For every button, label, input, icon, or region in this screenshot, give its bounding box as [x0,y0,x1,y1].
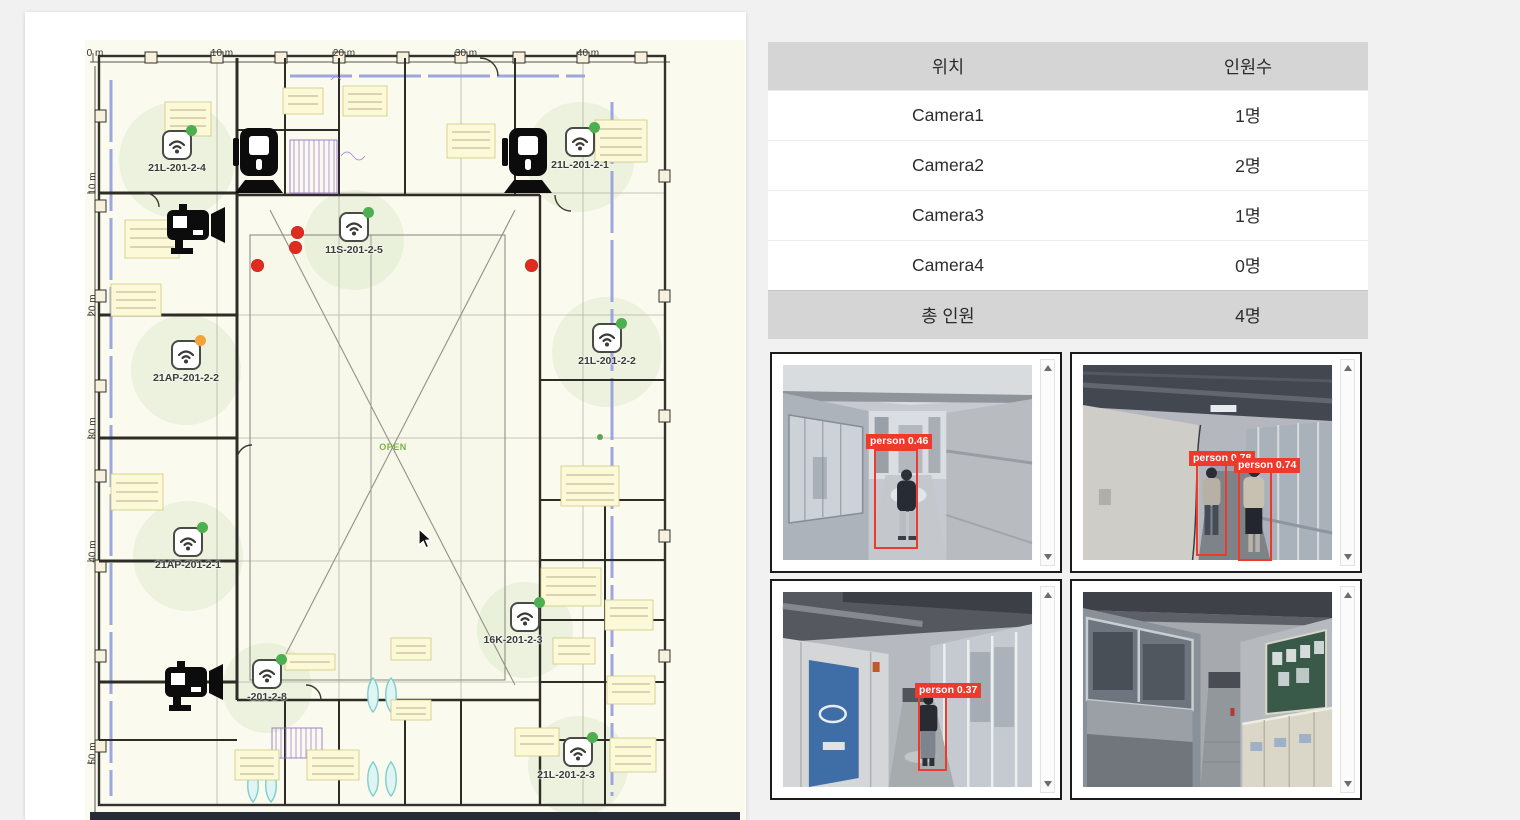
floor-plan-card: 0 m 10 m 20 m 30 m 40 m 10 m 20 m 30 m 4… [25,12,746,820]
person-dot [291,226,304,239]
scroll-up-arrow[interactable] [1341,361,1354,375]
camera4-map-icon[interactable] [165,661,227,716]
ap-status-dot [276,654,287,665]
camera1-frame: person 0.46 [777,359,1038,566]
cell-location: Camera3 [768,205,1128,226]
left-ruler-30m: 30 m [88,415,99,443]
detection-label: person 0.37 [915,683,981,698]
scroll-up-arrow[interactable] [1041,588,1054,602]
total-label: 총 인원 [768,303,1128,328]
camera4-frame [1077,586,1338,793]
table-row-camera2: Camera2 2명 [768,140,1368,190]
left-ruler-10m: 10 m [88,170,99,198]
detection-box [874,449,918,549]
scroll-up-arrow[interactable] [1041,361,1054,375]
top-ruler-0m: 0 m [87,48,104,59]
camera3-frame: person 0.37 [777,586,1038,793]
left-ruler-40m: 40 m [88,538,99,566]
table-total-row: 총 인원 4명 [768,290,1368,339]
cell-count: 1명 [1128,103,1368,128]
cell-count: 2명 [1128,153,1368,178]
camera4-scrollbar[interactable] [1340,586,1355,793]
ap-status-dot [197,522,208,533]
ap-status-dot [616,318,627,329]
ap-status-dot [195,335,206,346]
table-row-camera3: Camera3 1명 [768,190,1368,240]
cell-location: Camera2 [768,155,1128,176]
cell-location: Camera4 [768,255,1128,276]
ap-status-dot [186,125,197,136]
camera3-scrollbar[interactable] [1040,586,1055,793]
detection-label: person 0.74 [1234,458,1300,473]
camera1-scrollbar[interactable] [1040,359,1055,566]
video-camera-icon [167,204,229,254]
scroll-down-arrow[interactable] [1341,550,1354,564]
cctv-camera-icon [500,128,556,194]
dashboard: 0 m 10 m 20 m 30 m 40 m 10 m 20 m 30 m 4… [0,0,1520,820]
open-area-label: OPEN [379,442,407,452]
person-dot [289,241,302,254]
col-header-count: 인원수 [1128,54,1368,79]
scroll-down-arrow[interactable] [1041,777,1054,791]
camera3-photo [777,586,1038,793]
camera3-feed-panel[interactable]: person 0.37 [770,579,1062,800]
scroll-down-arrow[interactable] [1041,550,1054,564]
table-row-camera1: Camera1 1명 [768,90,1368,140]
ap-status-dot [363,207,374,218]
camera4-feed-panel[interactable] [1070,579,1362,800]
cctv-camera-icon [231,128,287,194]
camera2-feed-panel[interactable]: person 0.78 person 0.74 [1070,352,1362,573]
floor-plan[interactable]: 0 m 10 m 20 m 30 m 40 m 10 m 20 m 30 m 4… [85,40,745,820]
cell-count: 0명 [1128,253,1368,278]
detection-box [918,695,947,771]
left-ruler-20m: 20 m [88,292,99,320]
table-header-row: 위치 인원수 [768,42,1368,90]
camera4-photo [1077,586,1338,793]
top-ruler-20m: 20 m [333,48,355,59]
ap-label: 21AP-201-2-2 [116,372,256,384]
col-header-location: 위치 [768,54,1128,79]
detection-label: person 0.46 [866,434,932,449]
video-camera-icon [165,661,227,711]
total-count: 4명 [1128,303,1368,328]
ap-label: 21L-201-2-4 [107,162,247,174]
detection-box [1238,465,1272,561]
camera2-frame: person 0.78 person 0.74 [1077,359,1338,566]
ap-label: 11S-201-2-5 [284,244,424,256]
ap-status-dot [534,597,545,608]
camera2-scrollbar[interactable] [1340,359,1355,566]
camera-feed-grid: person 0.46 [770,352,1362,800]
left-ruler-50m: 50 m [88,740,99,768]
table-row-camera4: Camera4 0명 [768,240,1368,290]
camera1-map-icon[interactable] [231,128,287,199]
scroll-down-arrow[interactable] [1341,777,1354,791]
ap-label: 21AP-201-2-1 [118,559,258,571]
ap-label: 16K-201-2-3 [443,634,583,646]
person-dot [251,259,264,272]
mouse-cursor [418,528,434,555]
ap-label: 21L-201-2-3 [496,769,636,781]
occupancy-table: 위치 인원수 Camera1 1명 Camera2 2명 Camera3 1명 … [768,42,1368,339]
top-ruler-30m: 30 m [455,48,477,59]
camera3-map-icon[interactable] [167,204,229,259]
ap-label: 21L-201-2-2 [537,355,677,367]
camera1-feed-panel[interactable]: person 0.46 [770,352,1062,573]
detection-box [1196,464,1227,556]
ap-status-dot [587,732,598,743]
cell-location: Camera1 [768,105,1128,126]
ap-status-dot [589,122,600,133]
camera2-map-icon[interactable] [500,128,556,199]
person-dot [525,259,538,272]
cell-count: 1명 [1128,203,1368,228]
scroll-up-arrow[interactable] [1341,588,1354,602]
top-ruler-10m: 10 m [211,48,233,59]
top-ruler-40m: 40 m [577,48,599,59]
